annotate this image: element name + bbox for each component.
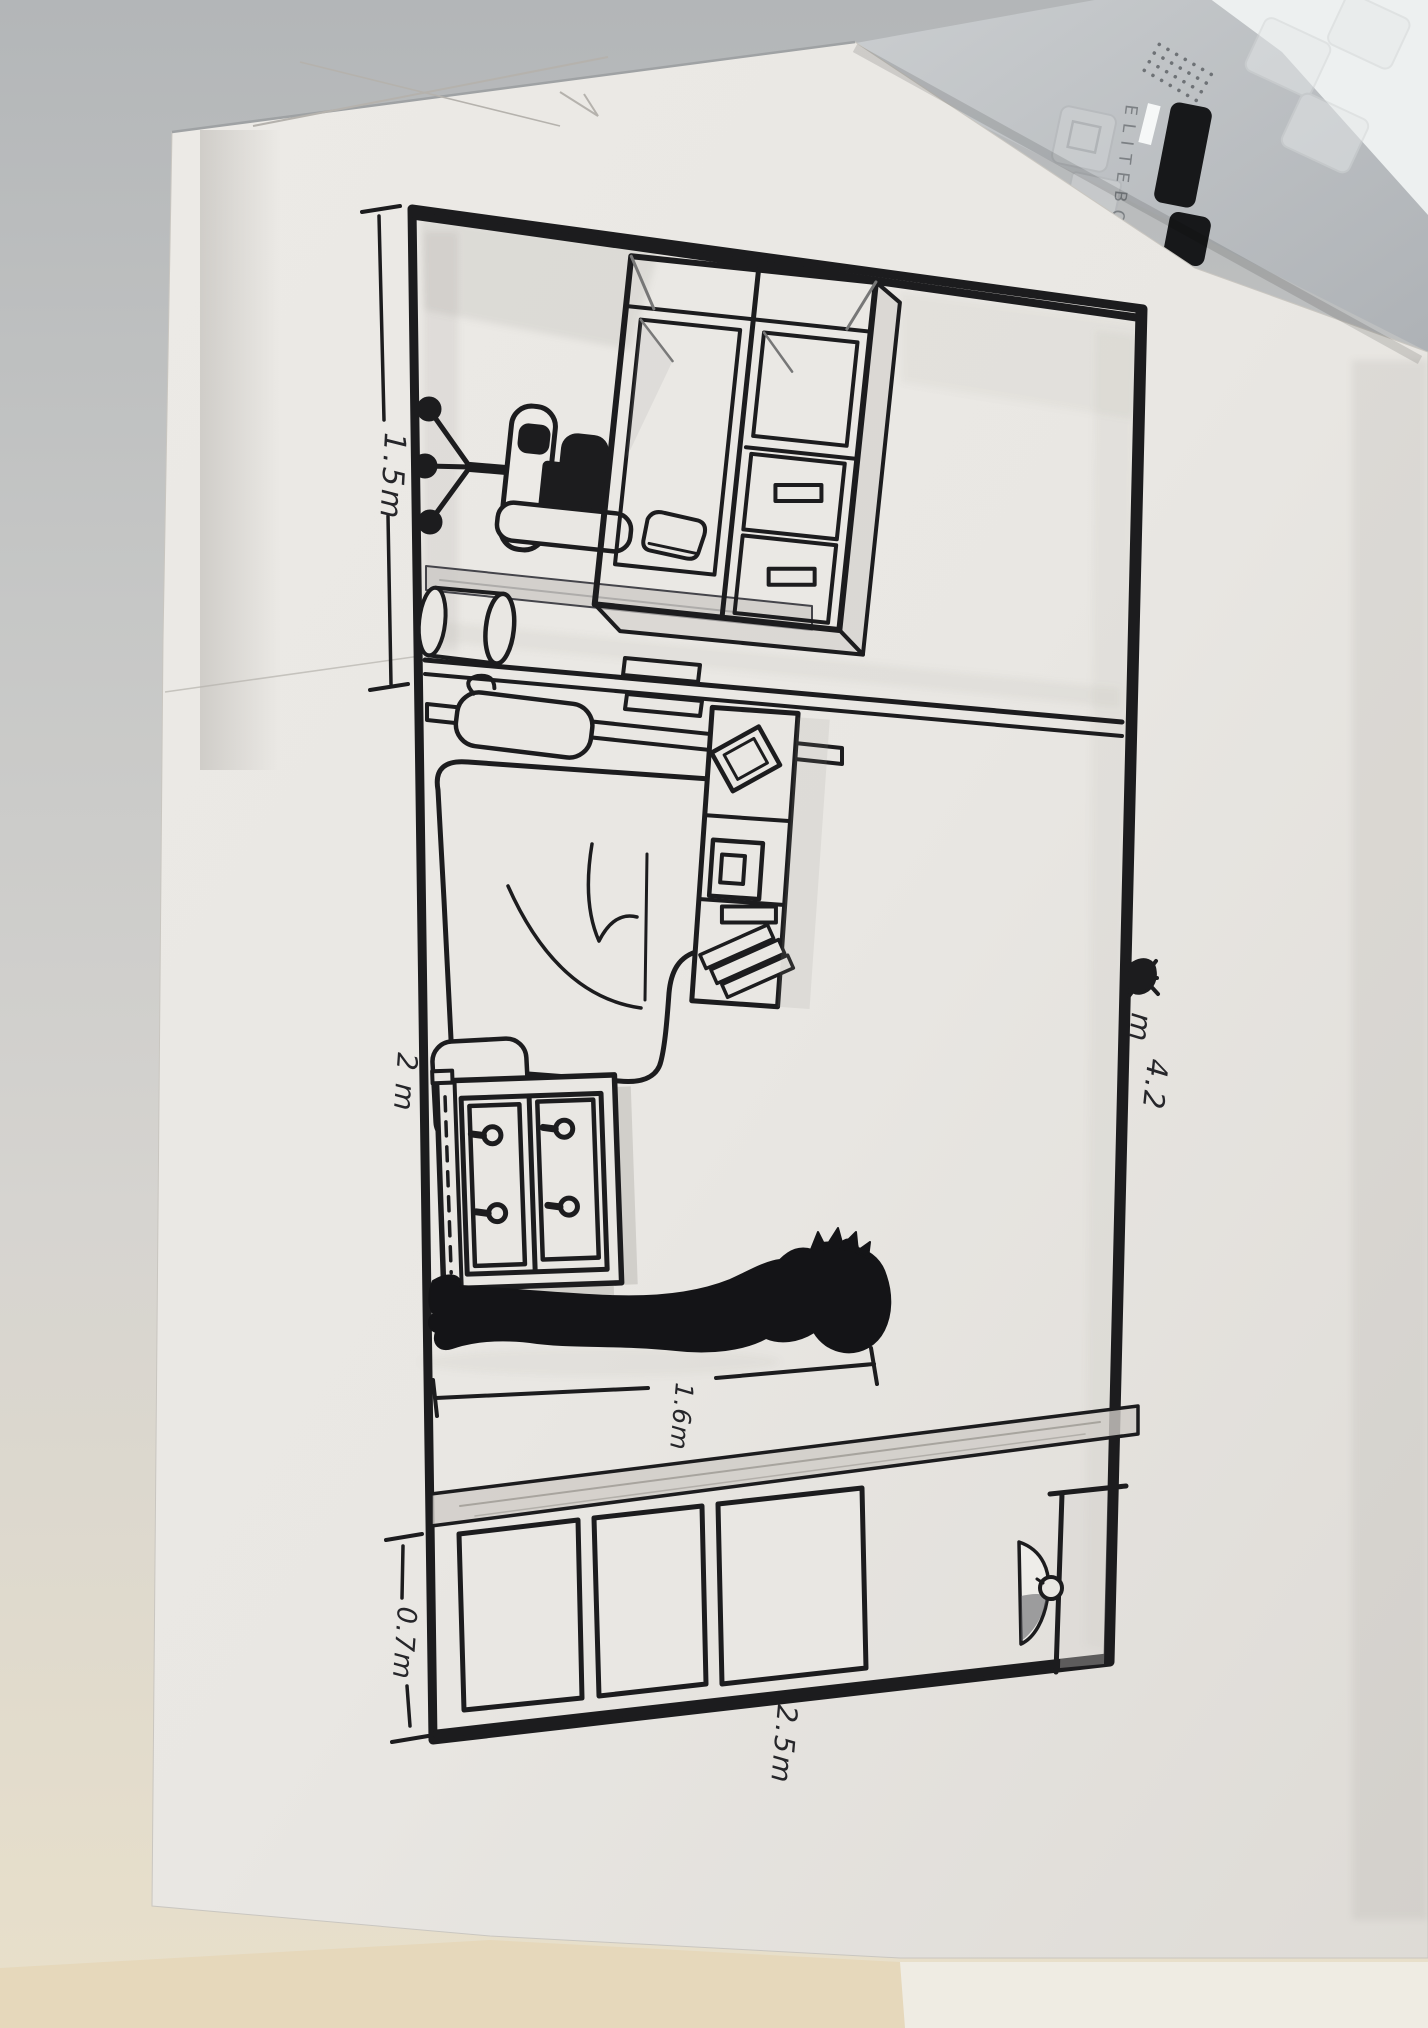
label-0-7m: 0.7m xyxy=(386,1606,422,1681)
label-2m: 2 m xyxy=(387,1052,424,1114)
dresser xyxy=(432,1064,638,1307)
book xyxy=(722,906,776,922)
table-bottom-right xyxy=(900,1962,1428,2028)
paper-fold-shading xyxy=(200,130,280,770)
sliding-panel xyxy=(718,1488,866,1684)
chair-armrest xyxy=(517,422,552,455)
scene-canvas: ELITEBOO xyxy=(0,0,1428,2028)
drawer-handle xyxy=(775,485,821,501)
sliding-panel xyxy=(459,1520,582,1710)
label-1-6m: 1.6m xyxy=(664,1381,699,1451)
label-2-5m: 2.5m xyxy=(764,1703,804,1785)
label-4-2-unit: m xyxy=(1122,1011,1159,1043)
label-1-5m: 1.5m xyxy=(372,432,412,523)
paper-curl-shading xyxy=(1352,360,1428,1920)
drawer-handle xyxy=(769,569,815,585)
photo-of-hand-drawn-room-plan: ELITEBOO xyxy=(0,0,1428,2028)
sliding-panel xyxy=(594,1506,706,1696)
bookshelf xyxy=(692,707,830,1009)
label-4-2: 4.2 xyxy=(1136,1057,1175,1112)
scribble-correction xyxy=(1127,960,1158,996)
